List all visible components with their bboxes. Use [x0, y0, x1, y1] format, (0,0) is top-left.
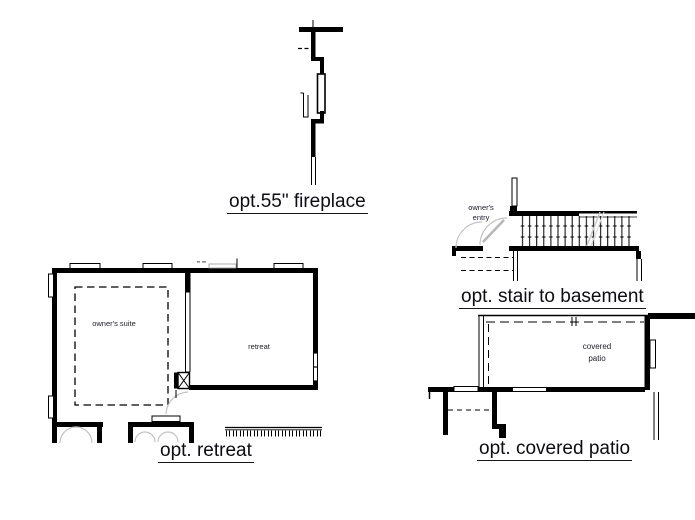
- window: [650, 340, 656, 368]
- door-swing-arc: [135, 432, 155, 442]
- wall-stub: [512, 178, 517, 206]
- wall-foot: [492, 424, 506, 429]
- chase-wall: [320, 57, 324, 75]
- floorplan-sheet: opt.55" fireplace opt. stair to basement…: [0, 0, 695, 520]
- room-label-owners-entry: owner's entry: [459, 203, 503, 223]
- counter-fixture: [152, 416, 180, 422]
- faint-window: [209, 264, 236, 268]
- wall-stub: [128, 427, 133, 443]
- wall: [311, 32, 316, 60]
- stair-detail-drawing: [452, 178, 642, 281]
- window: [274, 264, 303, 269]
- retreat-plan-drawing: [49, 259, 323, 444]
- window: [49, 274, 54, 297]
- exterior-wall: [648, 313, 695, 319]
- window: [49, 396, 54, 418]
- window: [70, 264, 100, 269]
- door-swing-arc: [456, 222, 482, 248]
- entry-wall: [452, 246, 483, 251]
- caption-fireplace: opt.55" fireplace: [227, 191, 368, 214]
- exterior-wall-right: [645, 315, 651, 390]
- stair-top-wall: [509, 211, 579, 216]
- hearth-bracket: [301, 93, 309, 117]
- interior-wall: [185, 268, 191, 292]
- wall: [311, 123, 316, 157]
- interior-wall: [443, 392, 448, 435]
- room-label-retreat: retreat: [243, 342, 275, 352]
- wall-corner: [636, 251, 641, 259]
- window: [454, 387, 478, 392]
- exterior-wall-right: [313, 268, 318, 353]
- covered-patio-drawing: [428, 313, 695, 440]
- wall-corner: [313, 381, 318, 390]
- window: [143, 264, 172, 269]
- stair-top-edge: [579, 211, 637, 214]
- interior-wall: [492, 392, 497, 424]
- interior-wall: [128, 422, 194, 427]
- retreat-wall-bottom: [189, 385, 318, 390]
- door-swing-arc: [60, 427, 92, 443]
- wall-end-cap: [452, 246, 456, 256]
- wall: [299, 27, 343, 32]
- caption-stair-basement: opt. stair to basement: [459, 286, 646, 309]
- stair-treads: [519, 216, 633, 248]
- room-label-covered-patio: covered patio: [574, 341, 620, 364]
- wall-stub: [97, 427, 102, 443]
- faint-mark: [197, 261, 200, 263]
- room-label-owners-suite: owner's suite: [88, 319, 140, 329]
- chase-wall: [311, 119, 324, 124]
- wall-stub: [499, 429, 506, 438]
- owners-suite-dashed-boundary: [75, 287, 168, 405]
- fireplace-detail-drawing: [298, 20, 343, 185]
- faint-mark: [202, 261, 206, 263]
- fireplace-box: [318, 74, 326, 113]
- deck-hatching: [225, 431, 322, 438]
- interior-wall: [52, 422, 103, 427]
- door-swing-arc: [166, 392, 188, 414]
- stair-bottom-wall: [509, 246, 639, 251]
- caption-retreat: opt. retreat: [158, 440, 254, 463]
- wall-stub: [52, 425, 57, 443]
- house-wall: [546, 387, 645, 392]
- door-leaf: [483, 220, 504, 242]
- caption-covered-patio: opt. covered patio: [477, 438, 632, 461]
